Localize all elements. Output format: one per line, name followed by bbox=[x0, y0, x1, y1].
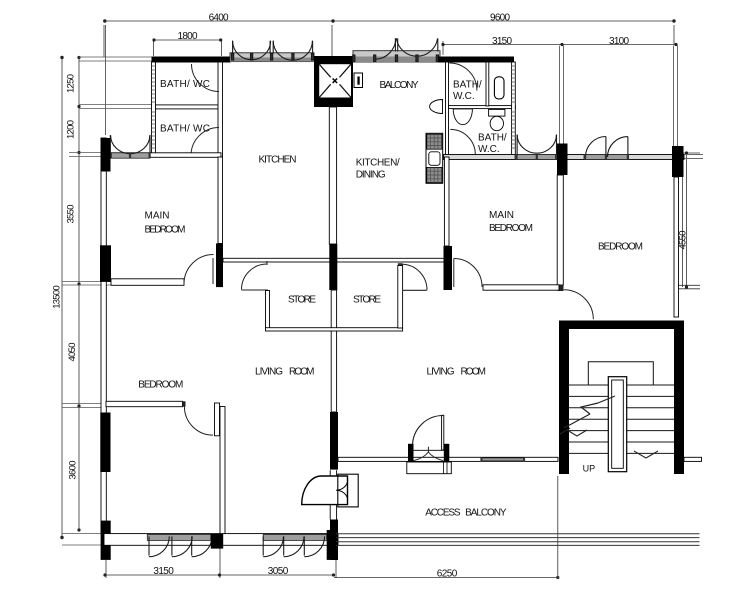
svg-text:STORE: STORE bbox=[353, 295, 381, 306]
svg-text:3150: 3150 bbox=[153, 566, 174, 577]
svg-text:BATH/ WC: BATH/ WC bbox=[160, 124, 210, 135]
svg-text:ROOM: ROOM bbox=[289, 367, 315, 378]
svg-text:1800: 1800 bbox=[178, 31, 198, 42]
svg-text:BATH/ WC: BATH/ WC bbox=[160, 79, 210, 90]
svg-text:1200: 1200 bbox=[66, 120, 77, 139]
svg-text:UP: UP bbox=[583, 464, 596, 474]
svg-text:3100: 3100 bbox=[609, 36, 629, 47]
svg-text:BEDROOM: BEDROOM bbox=[138, 380, 183, 391]
svg-text:BALCONY: BALCONY bbox=[380, 80, 419, 91]
svg-text:KITCHEN/: KITCHEN/ bbox=[356, 158, 400, 169]
svg-text:BEDROOM: BEDROOM bbox=[145, 225, 186, 236]
svg-text:W.C.: W.C. bbox=[453, 91, 475, 102]
svg-text:3550: 3550 bbox=[66, 205, 77, 224]
svg-text:3050: 3050 bbox=[268, 566, 289, 577]
svg-text:MAIN: MAIN bbox=[145, 211, 170, 222]
svg-text:4550: 4550 bbox=[678, 231, 689, 250]
svg-text:4050: 4050 bbox=[67, 343, 78, 362]
svg-text:3150: 3150 bbox=[492, 36, 512, 47]
svg-text:BALCONY: BALCONY bbox=[465, 508, 507, 519]
svg-text:LIVING: LIVING bbox=[255, 367, 283, 378]
svg-text:6400: 6400 bbox=[209, 13, 229, 24]
svg-text:6250: 6250 bbox=[437, 568, 458, 579]
svg-text:BATH/: BATH/ bbox=[478, 133, 507, 144]
svg-text:ACCESS: ACCESS bbox=[425, 508, 461, 519]
svg-text:KITCHEN: KITCHEN bbox=[259, 155, 297, 166]
svg-text:9600: 9600 bbox=[490, 13, 510, 24]
svg-text:BEDROOM: BEDROOM bbox=[598, 242, 643, 253]
svg-text:MAIN: MAIN bbox=[489, 210, 514, 221]
svg-text:BATH/: BATH/ bbox=[453, 80, 482, 91]
svg-text:W.C.: W.C. bbox=[478, 144, 500, 155]
svg-text:STORE: STORE bbox=[288, 295, 316, 306]
svg-text:13500: 13500 bbox=[52, 285, 63, 309]
svg-text:DINING: DINING bbox=[356, 170, 386, 181]
svg-text:1250: 1250 bbox=[66, 74, 77, 93]
svg-text:BEDROOM: BEDROOM bbox=[489, 223, 533, 234]
svg-text:ROOM: ROOM bbox=[461, 367, 487, 378]
svg-text:3600: 3600 bbox=[68, 461, 79, 480]
svg-text:LIVING: LIVING bbox=[427, 367, 455, 378]
